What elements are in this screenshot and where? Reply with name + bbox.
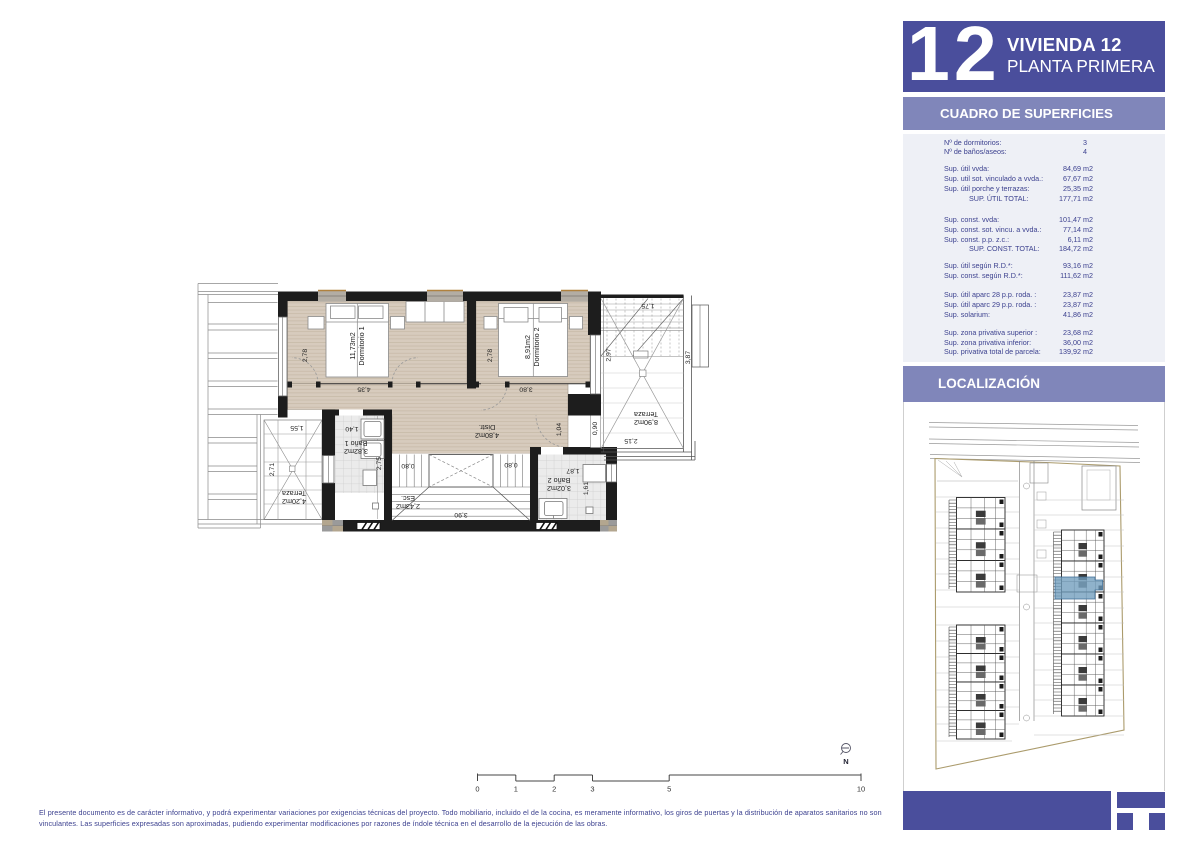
svg-text:0,80: 0,80	[401, 462, 414, 469]
svg-text:0,80: 0,80	[504, 461, 517, 468]
svg-text:2,97: 2,97	[606, 348, 613, 361]
svg-text:1,61: 1,61	[583, 482, 590, 495]
svg-text:Dormitorio 2: Dormitorio 2	[532, 327, 541, 366]
svg-text:Esc.: Esc.	[401, 494, 415, 503]
svg-text:8,90m2: 8,90m2	[634, 418, 658, 427]
svg-text:3,87: 3,87	[685, 351, 692, 364]
svg-text:1,55: 1,55	[290, 424, 303, 431]
svg-text:2: 2	[552, 785, 556, 794]
svg-text:2,43m2: 2,43m2	[396, 502, 420, 511]
svg-text:Baño 1: Baño 1	[345, 439, 368, 448]
svg-text:8,91m2: 8,91m2	[523, 335, 532, 359]
svg-text:1,04: 1,04	[556, 423, 563, 436]
svg-text:11,73m2: 11,73m2	[348, 332, 357, 359]
svg-text:0: 0	[475, 785, 479, 794]
svg-text:2,78: 2,78	[487, 349, 494, 362]
svg-text:5: 5	[667, 785, 671, 794]
svg-text:3: 3	[590, 785, 594, 794]
svg-text:10: 10	[857, 785, 865, 794]
svg-text:3,02m2: 3,02m2	[547, 484, 571, 493]
svg-text:Terraza: Terraza	[634, 410, 658, 419]
svg-text:Distr.: Distr.	[479, 423, 495, 432]
svg-text:N: N	[843, 757, 848, 766]
svg-text:3,82m2: 3,82m2	[344, 447, 368, 456]
svg-text:1,75: 1,75	[641, 302, 654, 309]
svg-text:2,75: 2,75	[376, 457, 383, 470]
svg-text:2,71: 2,71	[269, 463, 276, 476]
svg-text:Baño 2: Baño 2	[548, 476, 571, 485]
svg-text:2,78: 2,78	[302, 349, 309, 362]
svg-text:3,90: 3,90	[454, 511, 467, 518]
svg-text:1: 1	[514, 785, 518, 794]
svg-text:0,90: 0,90	[592, 422, 599, 435]
svg-text:Terraza: Terraza	[282, 489, 306, 498]
svg-text:4,20m2: 4,20m2	[282, 497, 306, 506]
svg-text:1,40: 1,40	[345, 425, 358, 432]
svg-text:2,15: 2,15	[624, 437, 637, 444]
svg-text:4,35: 4,35	[357, 386, 370, 393]
svg-text:1,87: 1,87	[566, 467, 579, 474]
svg-text:Dormitorio 1: Dormitorio 1	[357, 326, 366, 365]
svg-text:3,80: 3,80	[519, 386, 532, 393]
svg-text:4,80m2: 4,80m2	[475, 431, 499, 440]
